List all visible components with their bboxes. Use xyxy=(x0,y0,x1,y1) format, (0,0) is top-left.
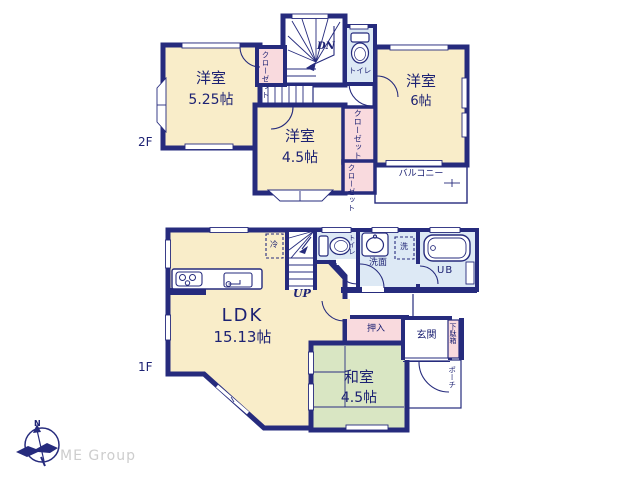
porch-label: ポーチ xyxy=(447,366,456,396)
bath-label: UB xyxy=(437,265,453,277)
washroom-label: 洗面 xyxy=(369,258,387,268)
toilet-1f-label: トイレ xyxy=(348,234,356,262)
toilet-2f-icon xyxy=(351,33,369,63)
room-tatami-size: 4.5帖 xyxy=(313,390,405,406)
closet-small-label: クローゼット xyxy=(346,164,357,191)
floor1-label: 1F xyxy=(138,361,153,375)
stairs-up-label: UP xyxy=(293,288,311,301)
laundry-label: 洗 xyxy=(400,242,408,251)
room-ldk-name: LDK xyxy=(195,306,290,327)
room-west-bedroom-size: 5.25帖 xyxy=(165,92,257,108)
shoe-cabinet-label: 下駄箱 xyxy=(449,323,457,357)
room-east-bedroom-name: 洋室 xyxy=(377,73,465,90)
toilet-1f-icon xyxy=(319,236,350,256)
kitchen-icon xyxy=(172,269,262,289)
toilet-2f-label: トイレ xyxy=(345,67,375,76)
room-center-bedroom-name: 洋室 xyxy=(257,128,343,145)
fridge-label: 冷 xyxy=(270,240,278,249)
room-center-bedroom-size: 4.5帖 xyxy=(257,150,343,166)
room-east-bedroom-size: 6帖 xyxy=(377,95,465,110)
floor-plan-image: 2F DN 洋室 5.25帖 洋室 4.5帖 洋室 6帖 トイレ クローゼット … xyxy=(0,0,640,480)
compass-north-label: N xyxy=(34,419,41,428)
closet-mid-label: クローゼット xyxy=(353,109,362,163)
room-ldk-size: 15.13帖 xyxy=(185,329,300,346)
closet-hall-label: クローゼット xyxy=(260,51,271,78)
stairs-down-label: DN xyxy=(317,41,335,53)
oshiire-label: 押入 xyxy=(347,324,405,334)
entrance-label: 玄関 xyxy=(405,330,448,342)
washbasin-icon xyxy=(362,233,388,256)
room-west-bedroom-name: 洋室 xyxy=(165,70,257,87)
company-logo-text: ME Group xyxy=(60,448,136,464)
balcony-label: バルコニー xyxy=(377,169,465,179)
room-tatami-name: 和室 xyxy=(313,369,405,386)
floorplan-canvas xyxy=(0,0,640,480)
compass-icon xyxy=(16,424,59,466)
floor2-label: 2F xyxy=(138,136,153,150)
